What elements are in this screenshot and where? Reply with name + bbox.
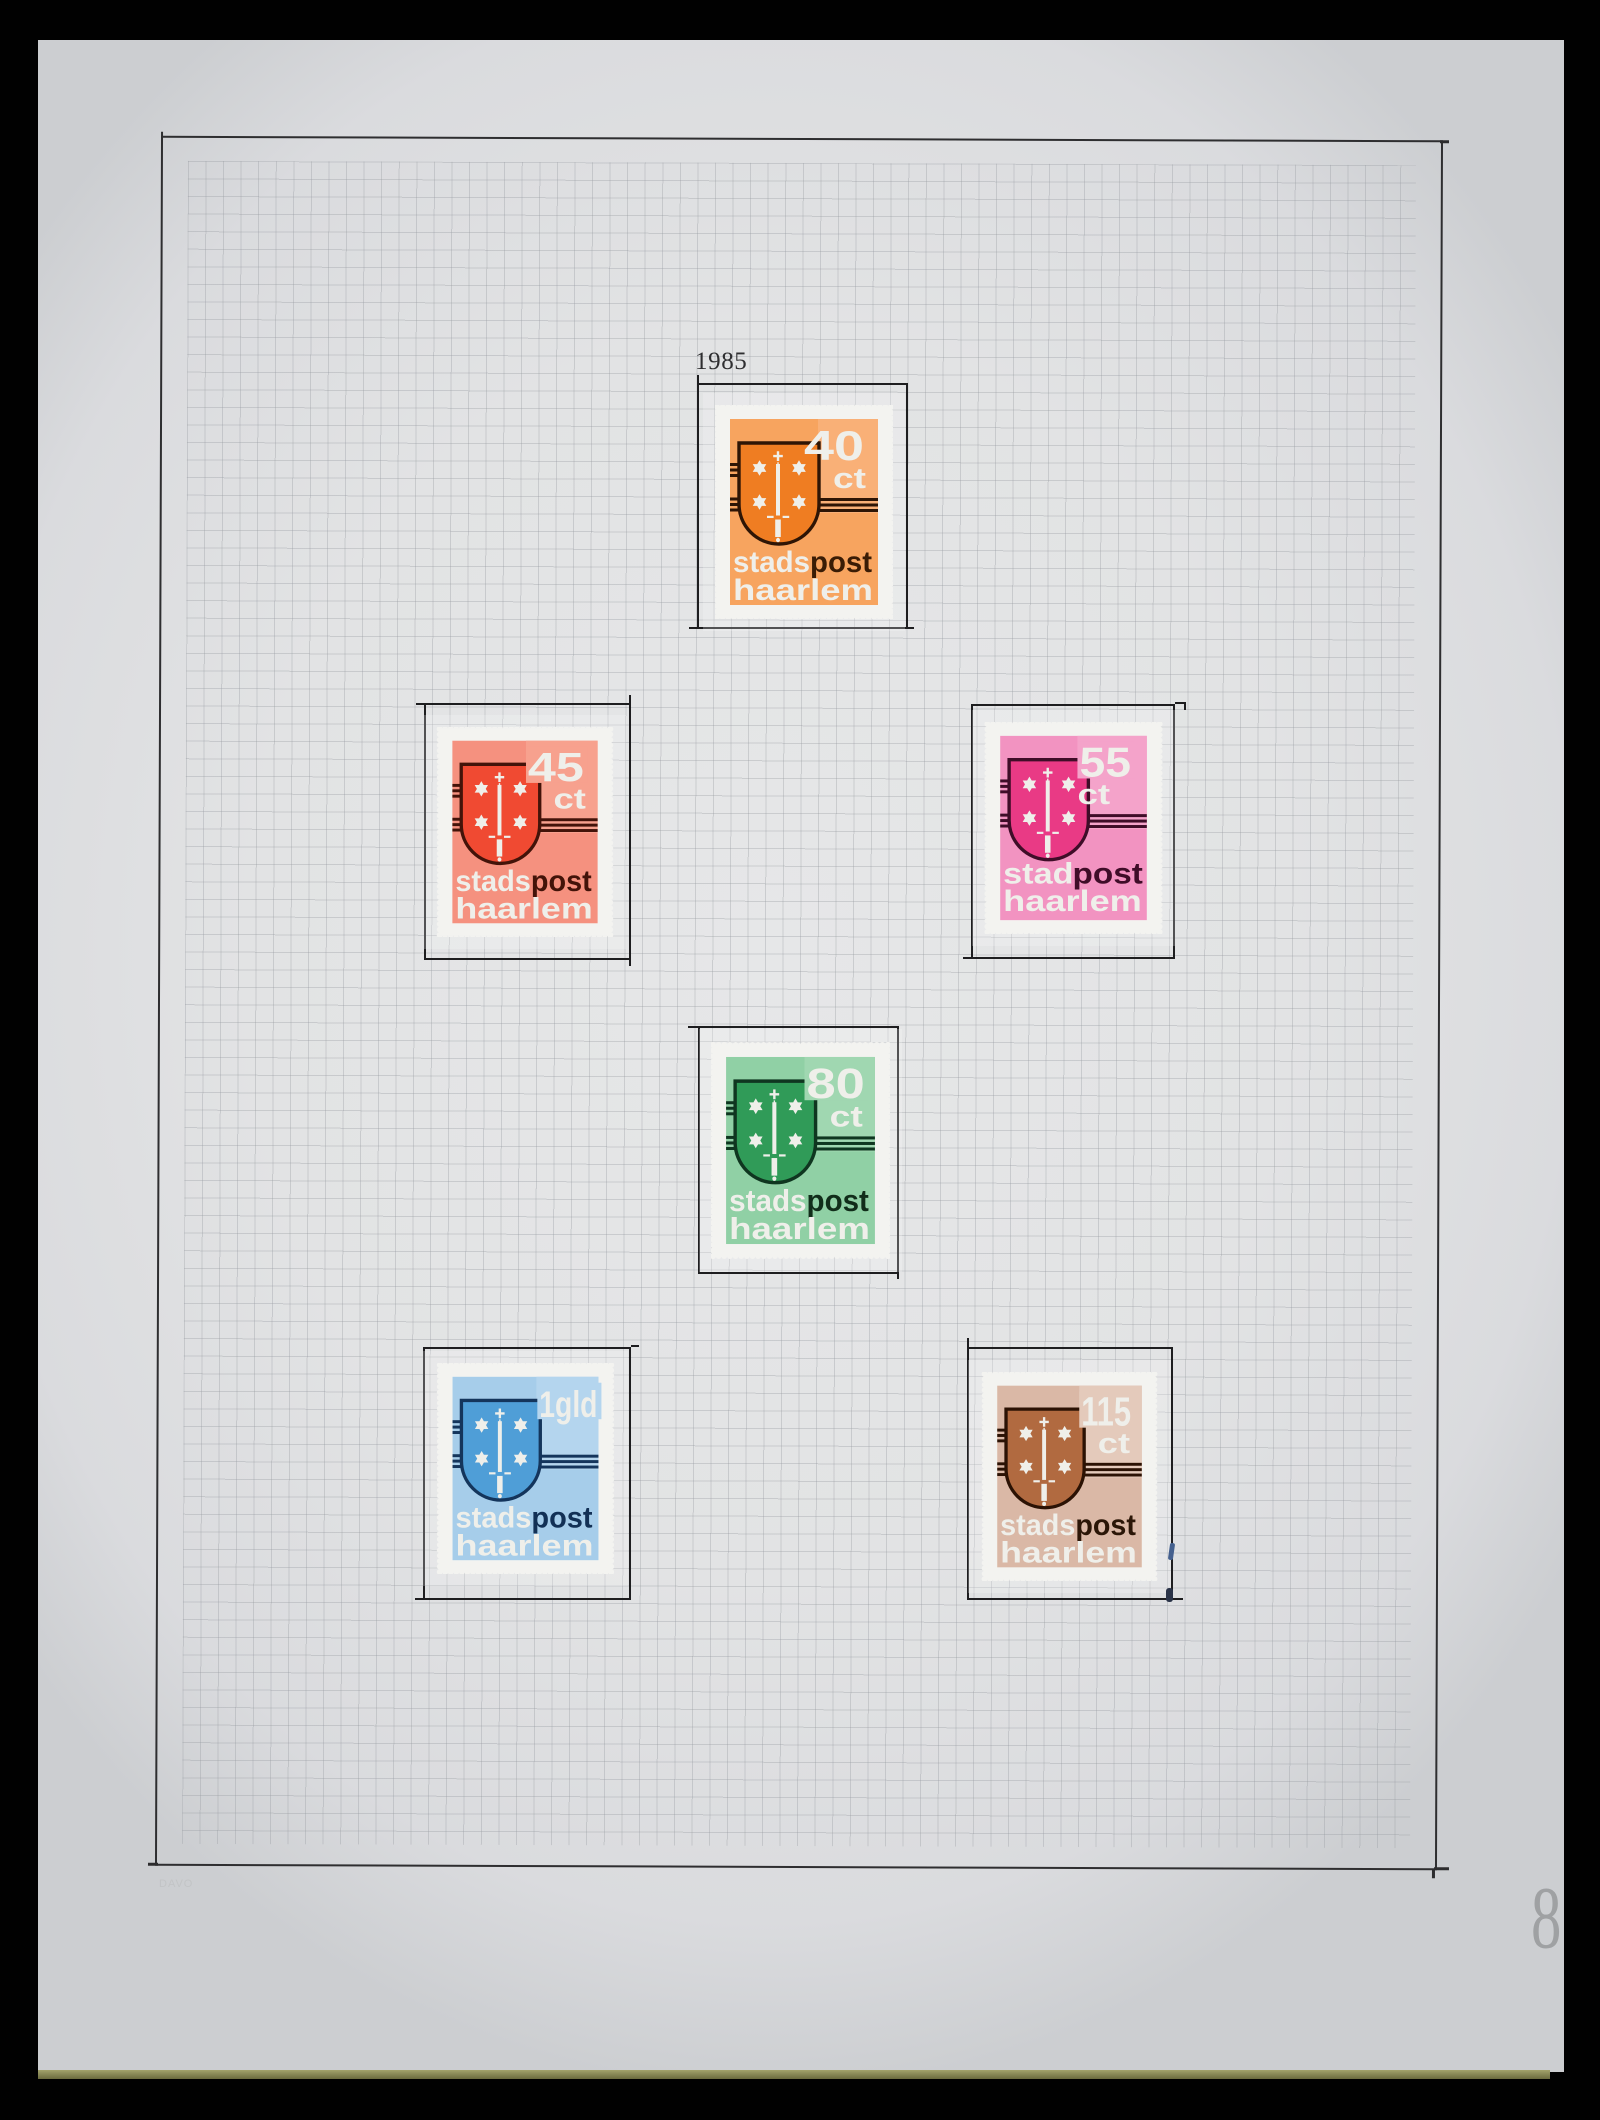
svg-text:haarlem: haarlem	[455, 892, 592, 925]
svg-text:ct: ct	[1077, 779, 1110, 811]
svg-text:haarlem: haarlem	[1000, 1536, 1137, 1569]
svg-text:ct: ct	[553, 783, 586, 815]
svg-text:ct: ct	[833, 463, 866, 495]
svg-text:80: 80	[807, 1060, 865, 1107]
svg-text:haarlem: haarlem	[1003, 885, 1142, 918]
svg-text:ct: ct	[830, 1101, 864, 1133]
svg-text:haarlem: haarlem	[733, 574, 873, 607]
svg-text:haarlem: haarlem	[729, 1213, 870, 1246]
svg-text:40: 40	[804, 422, 864, 469]
svg-text:haarlem: haarlem	[455, 1529, 593, 1562]
svg-text:1gld: 1gld	[539, 1383, 597, 1425]
svg-text:ct: ct	[1098, 1428, 1131, 1460]
